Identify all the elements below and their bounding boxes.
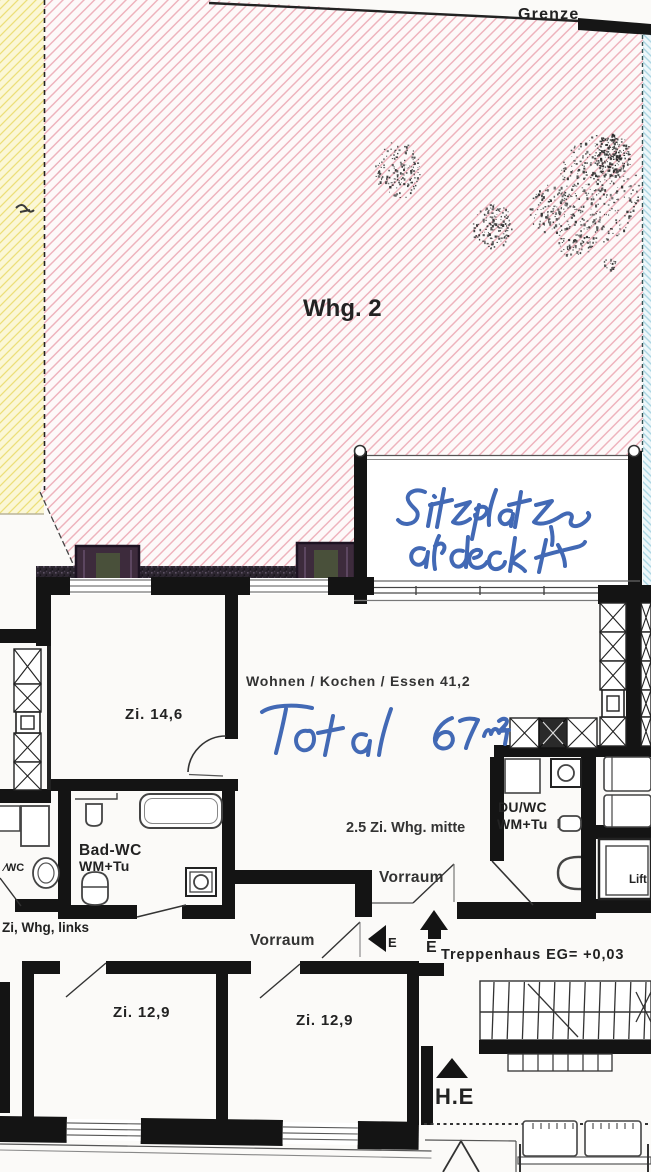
svg-text:Zi. 14,6: Zi. 14,6 [125, 706, 183, 723]
svg-text:Grenze: Grenze [518, 6, 579, 23]
svg-text:∕WC: ∕WC [1, 862, 24, 874]
svg-text:DU/WC: DU/WC [498, 799, 547, 815]
svg-text:E: E [388, 935, 397, 950]
svg-text:Zi. 12,9: Zi. 12,9 [113, 1004, 170, 1021]
svg-text:Whg. 2: Whg. 2 [303, 295, 382, 322]
svg-text:Vorraum: Vorraum [379, 869, 444, 886]
svg-text:Treppenhaus EG= +0,03: Treppenhaus EG= +0,03 [441, 947, 624, 963]
svg-text:E: E [426, 939, 437, 956]
svg-text:Zi. 12,9: Zi. 12,9 [296, 1012, 353, 1029]
svg-text:Lift: Lift [629, 874, 647, 886]
svg-text:Wohnen / Kochen / Essen 41,2: Wohnen / Kochen / Essen 41,2 [246, 673, 470, 689]
svg-text:WM+Tu: WM+Tu [79, 858, 130, 874]
svg-text:Zi, Whg, links: Zi, Whg, links [2, 920, 89, 935]
svg-text:WM+Tu: WM+Tu [497, 816, 548, 832]
svg-text:Bad-WC: Bad-WC [79, 842, 142, 859]
svg-text:Vorraum: Vorraum [250, 932, 315, 949]
svg-text:2.5 Zi. Whg. mitte: 2.5 Zi. Whg. mitte [346, 820, 465, 836]
svg-text:H.E: H.E [435, 1084, 474, 1109]
